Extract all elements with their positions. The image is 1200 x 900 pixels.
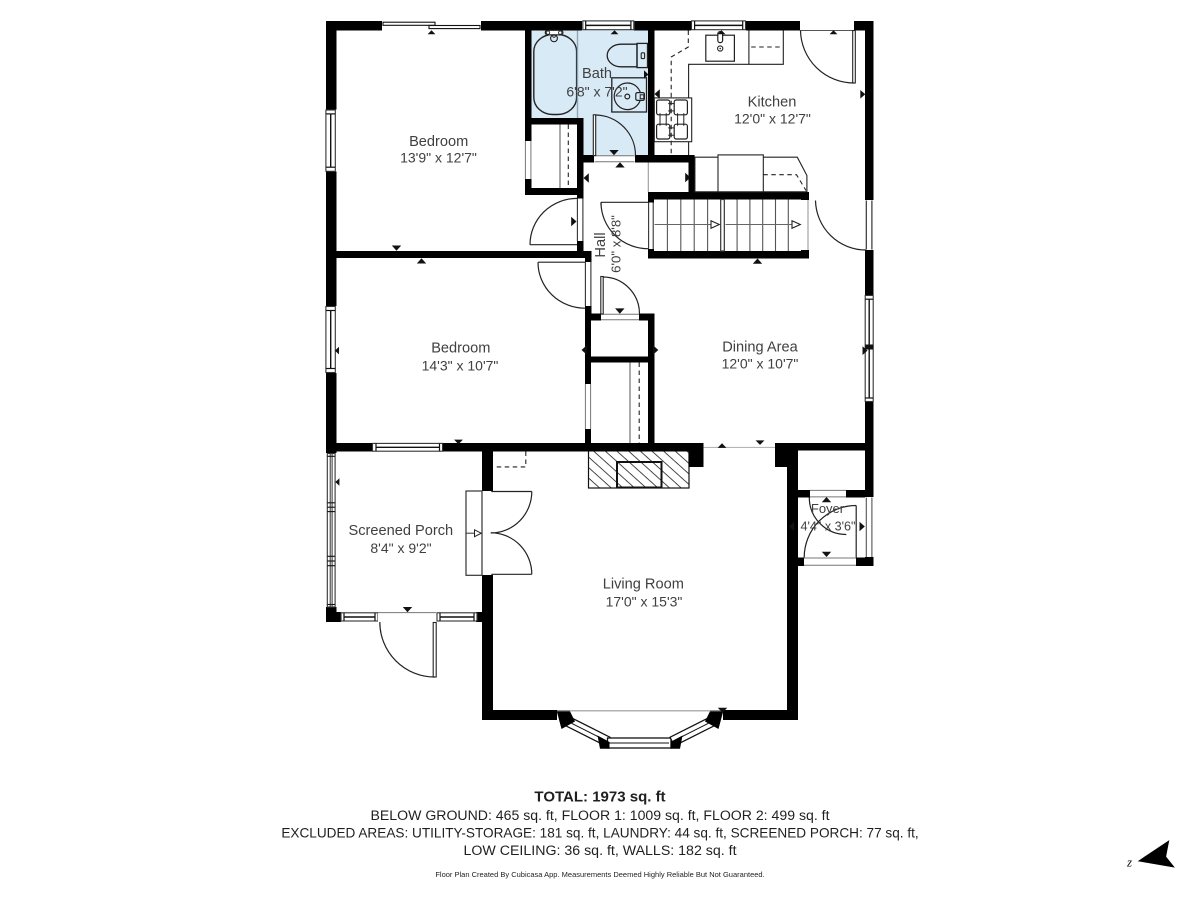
svg-text:14'3" x 10'7": 14'3" x 10'7" [422,358,499,374]
svg-text:13'9" x 12'7": 13'9" x 12'7" [400,150,477,166]
svg-text:6'8" x 7'2": 6'8" x 7'2" [566,84,627,100]
svg-text:Bedroom: Bedroom [431,341,490,357]
svg-text:Dining Area: Dining Area [722,340,798,356]
svg-text:EXCLUDED AREAS: UTILITY-STORAG: EXCLUDED AREAS: UTILITY-STORAGE: 181 sq.… [281,826,918,841]
svg-text:Bath: Bath [582,66,612,82]
svg-text:4'4" x 3'6": 4'4" x 3'6" [800,520,855,534]
svg-text:BELOW GROUND: 465 sq. ft, FLOO: BELOW GROUND: 465 sq. ft, FLOOR 1: 1009 … [371,807,830,823]
svg-text:Kitchen: Kitchen [748,95,797,111]
svg-text:8'4" x 9'2": 8'4" x 9'2" [370,540,431,556]
svg-text:Bedroom: Bedroom [409,134,468,150]
svg-text:12'0" x 12'7": 12'0" x 12'7" [734,111,811,127]
svg-text:Screened Porch: Screened Porch [348,523,453,539]
svg-text:12'0" x 10'7": 12'0" x 10'7" [722,356,799,372]
svg-text:z: z [1126,855,1132,870]
svg-text:Living Room: Living Room [603,577,684,593]
svg-text:6'0" x 8'8": 6'0" x 8'8" [609,215,624,273]
svg-text:Foyer: Foyer [811,501,845,516]
svg-text:LOW CEILING: 36 sq. ft, WALLS:: LOW CEILING: 36 sq. ft, WALLS: 182 sq. f… [463,843,736,859]
svg-text:TOTAL: 1973 sq. ft: TOTAL: 1973 sq. ft [534,789,665,806]
svg-text:17'0" x 15'3": 17'0" x 15'3" [606,594,683,610]
svg-text:Floor Plan Created By Cubicasa: Floor Plan Created By Cubicasa App. Meas… [435,870,764,879]
svg-text:Hall: Hall [593,232,609,257]
